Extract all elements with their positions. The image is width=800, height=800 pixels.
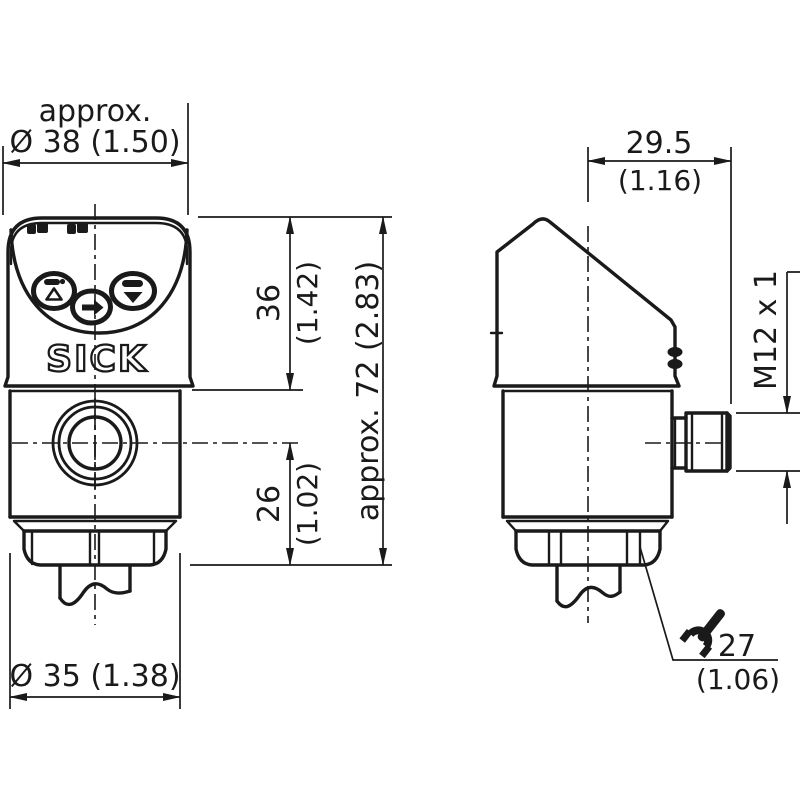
- dim-height-lower: 26 (1.02): [252, 443, 324, 565]
- dim-width-top-label: Ø 38 (1.50): [9, 125, 180, 160]
- dim-depth-mm: 29.5: [626, 126, 693, 161]
- dim-depth-inch: (1.16): [618, 164, 702, 197]
- dim-height-total: approx. 72 (2.83): [351, 217, 386, 565]
- dim-width-top-prefix: approx.: [39, 94, 152, 129]
- dim-connector-thread: M12 x 1: [736, 270, 800, 524]
- dim-height-upper: 36 (1.42): [252, 217, 324, 390]
- m12-connector: [672, 413, 730, 471]
- side-head-outline: [494, 219, 679, 386]
- dim-connector-label: M12 x 1: [749, 270, 784, 390]
- up-button[interactable]: [34, 274, 75, 309]
- dim-width-top: approx. Ø 38 (1.50): [3, 94, 188, 215]
- dim-26-mm: 26: [252, 485, 287, 523]
- wrench-size-inch: (1.06): [696, 663, 780, 696]
- dim-36-mm: 36: [252, 284, 287, 322]
- down-arrow-icon: [122, 280, 143, 303]
- brand-logo: SICK: [46, 339, 148, 380]
- up-arrow-icon: [44, 279, 65, 300]
- dimensions: approx. Ø 38 (1.50) 36 (1.42) 26 (1.02) …: [3, 94, 800, 709]
- side-view: [491, 219, 733, 623]
- note-wrench-size: 27 (1.06): [640, 547, 780, 696]
- enter-arrow-icon: [82, 300, 104, 316]
- dimensional-drawing: SICK: [0, 0, 800, 800]
- dim-26-inch: (1.02): [291, 462, 324, 546]
- down-button[interactable]: [112, 274, 155, 309]
- dim-36-inch: (1.42): [291, 261, 324, 345]
- dim-depth: 29.5 (1.16): [588, 126, 731, 404]
- dim-width-bottom-label: Ø 35 (1.38): [9, 659, 180, 694]
- front-view: SICK: [5, 204, 303, 625]
- wrench-size-mm: 27: [718, 629, 756, 664]
- enter-button[interactable]: [73, 291, 111, 323]
- dim-72-label: approx. 72 (2.83): [351, 261, 386, 521]
